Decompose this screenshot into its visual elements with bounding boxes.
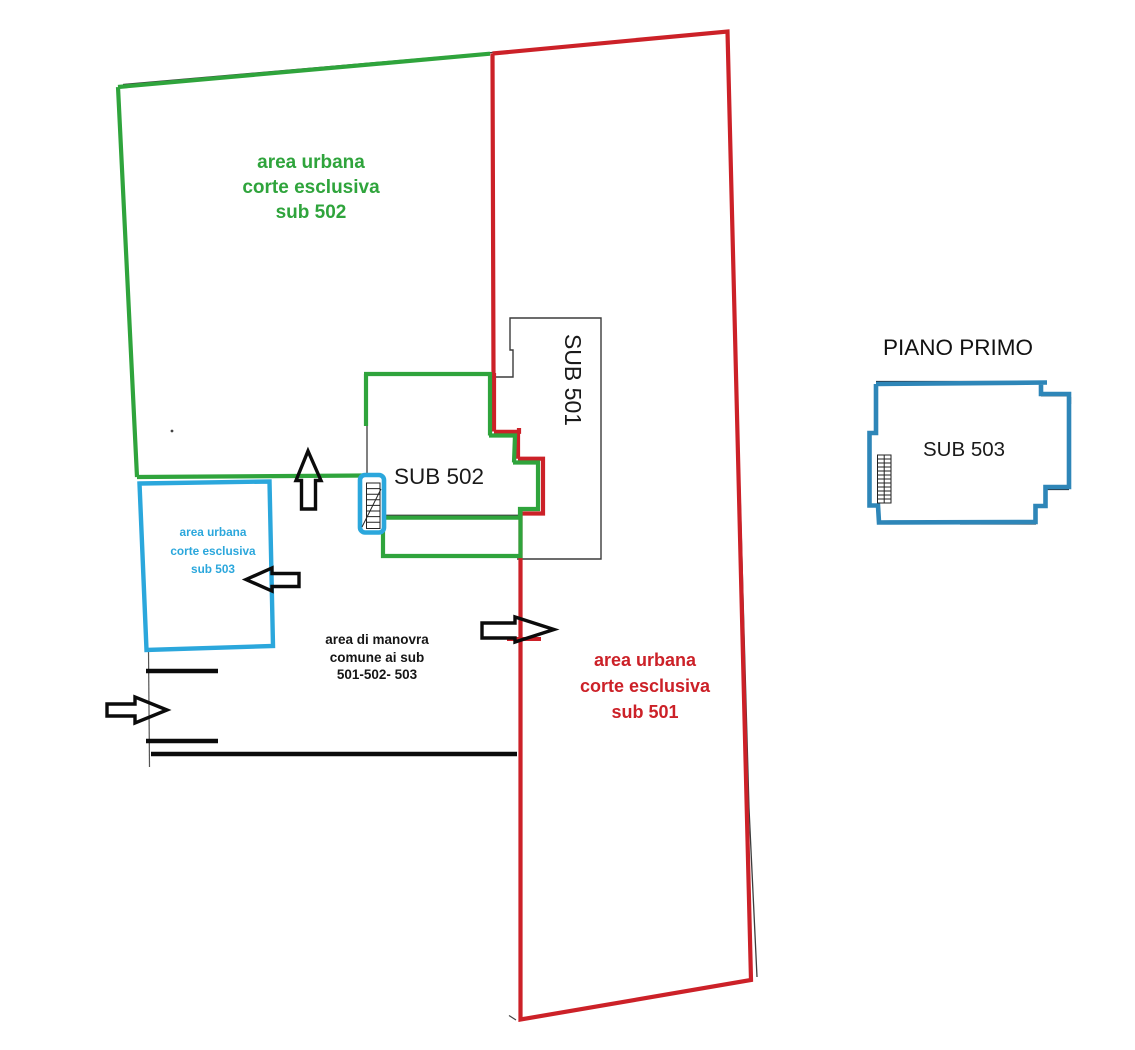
svg-text:SUB 503: SUB 503 [923, 438, 1005, 461]
svg-text:501-502- 503: 501-502- 503 [337, 667, 418, 682]
svg-text:sub 502: sub 502 [276, 202, 347, 223]
svg-text:area urbana: area urbana [594, 650, 697, 670]
svg-text:sub 501: sub 501 [611, 702, 678, 722]
svg-text:corte esclusiva: corte esclusiva [170, 544, 256, 558]
svg-text:area di manovra: area di manovra [325, 632, 429, 647]
svg-text:SUB 501: SUB 501 [560, 334, 586, 426]
svg-text:comune ai sub: comune ai sub [330, 650, 425, 665]
svg-text:area urbana: area urbana [180, 525, 247, 539]
svg-text:corte esclusiva: corte esclusiva [242, 177, 380, 198]
svg-text:PIANO PRIMO: PIANO PRIMO [883, 335, 1033, 360]
svg-text:corte esclusiva: corte esclusiva [580, 676, 711, 696]
svg-text:sub 503: sub 503 [191, 562, 235, 576]
svg-text:area urbana: area urbana [257, 152, 365, 173]
svg-text:SUB 502: SUB 502 [394, 464, 484, 489]
